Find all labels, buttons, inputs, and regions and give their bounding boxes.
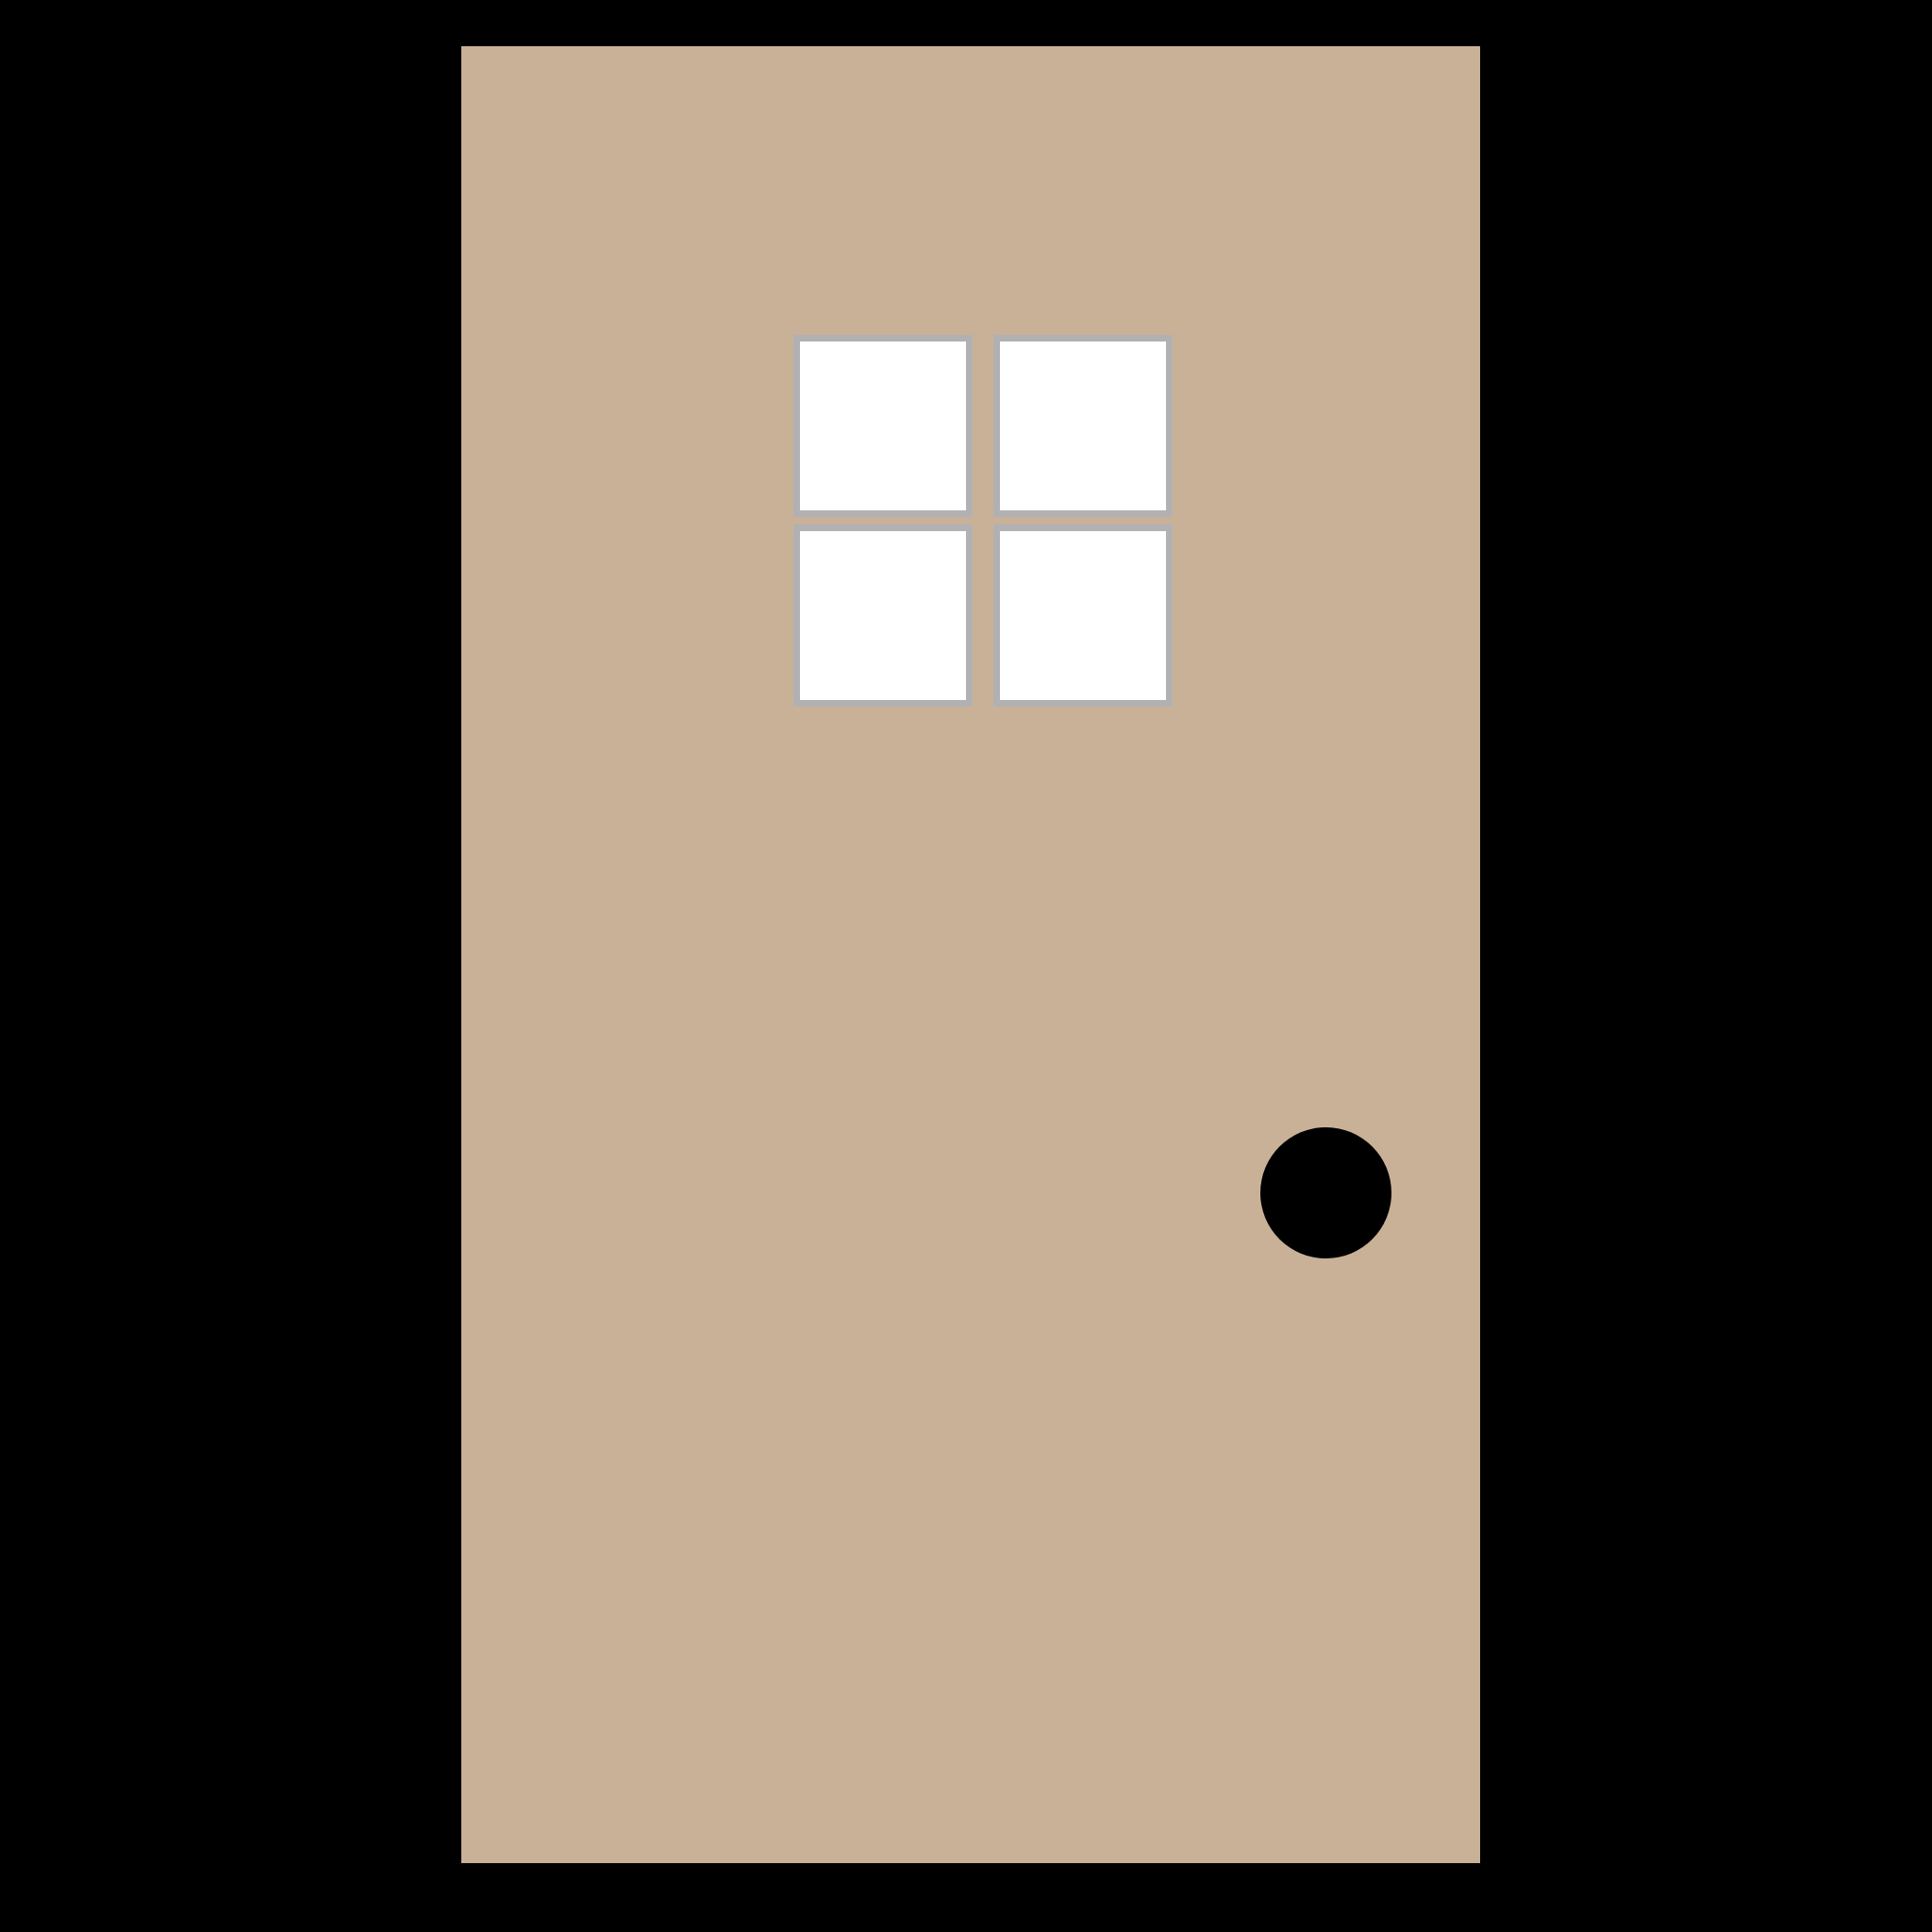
window-pane-top-right — [993, 335, 1173, 517]
door — [461, 46, 1480, 1863]
window-pane-bottom-left — [793, 525, 973, 707]
door-window — [793, 335, 1173, 707]
window-pane-bottom-right — [993, 525, 1173, 707]
window-pane-top-left — [793, 335, 973, 517]
scene-background — [0, 0, 1932, 1932]
door-knob — [1260, 1127, 1391, 1258]
